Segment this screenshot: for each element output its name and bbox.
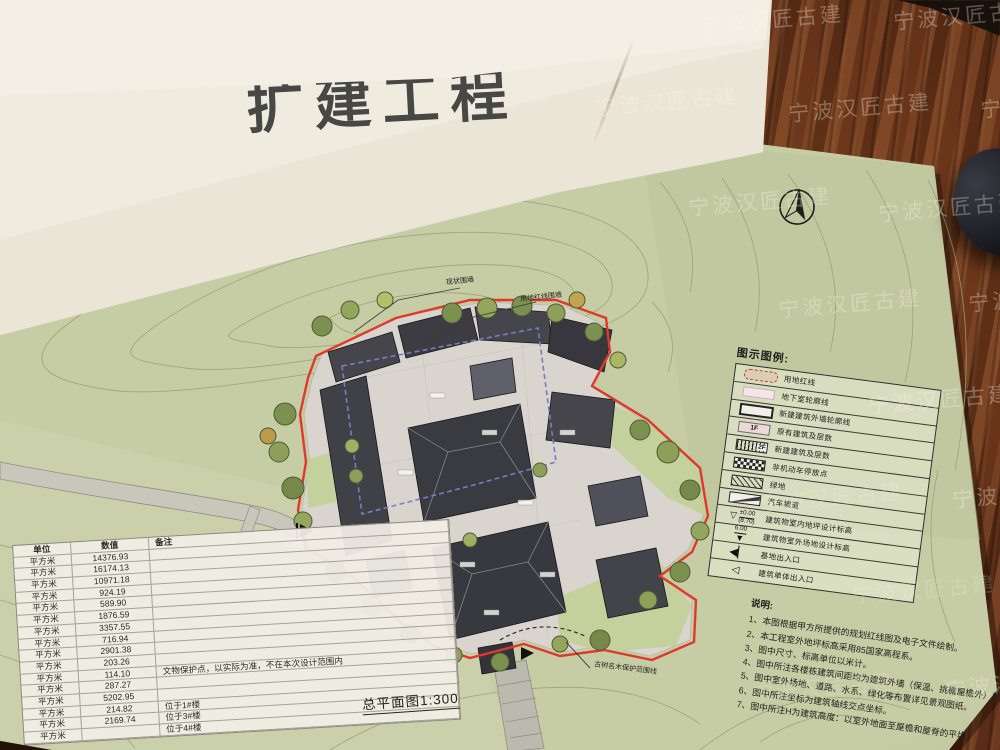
photo-scene: N 图示图例: 用地红线 地下室轮廓线 新建建筑外墙轮廓线 1F原有建筑及层数 … [0,0,1000,750]
legend-panel: 图示图例: 用地红线 地下室轮廓线 新建建筑外墙轮廓线 1F原有建筑及层数 2F… [708,344,945,603]
building-entrance-icon: ◁ [712,561,759,578]
legend-box: 用地红线 地下室轮廓线 新建建筑外墙轮廓线 1F原有建筑及层数 2F新建建筑及层… [708,363,942,603]
